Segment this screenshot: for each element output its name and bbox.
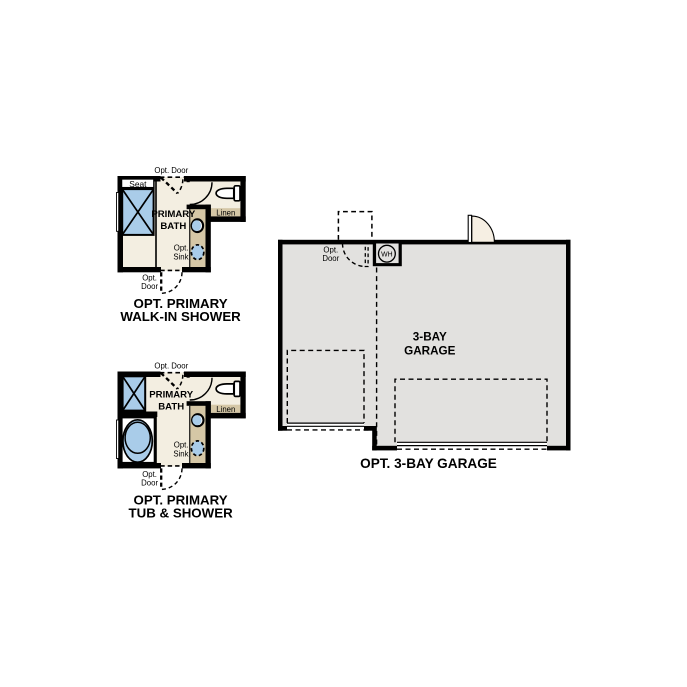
svg-text:Door: Door <box>141 282 158 291</box>
svg-text:3-BAY: 3-BAY <box>413 331 447 344</box>
svg-text:Opt.: Opt. <box>174 440 189 449</box>
svg-text:Seat: Seat <box>129 179 147 189</box>
svg-text:PRIMARY: PRIMARY <box>151 209 195 220</box>
svg-text:PRIMARY: PRIMARY <box>149 390 193 401</box>
svg-text:Opt. Door: Opt. Door <box>154 361 188 370</box>
svg-text:OPT. 3-BAY GARAGE: OPT. 3-BAY GARAGE <box>360 456 497 471</box>
svg-text:Door: Door <box>322 254 339 263</box>
svg-text:Sink: Sink <box>173 252 188 261</box>
svg-text:Linen: Linen <box>216 405 235 414</box>
svg-text:WH: WH <box>381 252 393 259</box>
svg-text:Sink: Sink <box>173 449 188 458</box>
svg-text:Door: Door <box>141 479 158 488</box>
svg-text:Linen: Linen <box>216 209 235 218</box>
svg-text:TUB & SHOWER: TUB & SHOWER <box>129 505 234 520</box>
svg-text:Opt.: Opt. <box>174 243 189 252</box>
svg-text:Opt. Door: Opt. Door <box>154 166 188 175</box>
svg-text:Opt.: Opt. <box>142 274 157 283</box>
svg-text:BATH: BATH <box>158 402 184 413</box>
svg-text:Opt.: Opt. <box>142 470 157 479</box>
svg-text:BATH: BATH <box>160 221 186 232</box>
svg-text:Opt.: Opt. <box>323 245 338 254</box>
svg-text:WALK-IN SHOWER: WALK-IN SHOWER <box>120 309 241 324</box>
svg-text:GARAGE: GARAGE <box>404 345 456 358</box>
